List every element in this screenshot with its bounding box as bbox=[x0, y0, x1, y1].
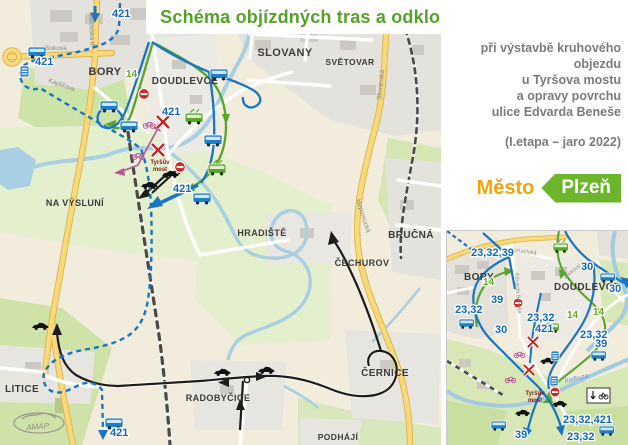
badge-39-right: 39 bbox=[595, 338, 607, 350]
badge-421-center: 421 bbox=[535, 323, 553, 335]
poster-root: BORY 14 DOUDLEVCE SLOVANY SVĚTOVAR NA VÝ… bbox=[0, 0, 628, 445]
detour-junction bbox=[244, 377, 249, 382]
badge-421-top: 421 bbox=[112, 8, 130, 20]
bus-stop-icon bbox=[550, 376, 558, 386]
bridge-label-line2: most bbox=[528, 398, 542, 404]
logo-mesto-text: Město bbox=[477, 177, 535, 200]
inset-map: BORY DOUDLEVCE Zborovská Edvarda Beneše … bbox=[447, 231, 628, 445]
badge-23-32-421: 23,32,421 bbox=[563, 414, 612, 426]
badge-14-bory: 14 bbox=[483, 277, 495, 288]
badge-23-32-bottom: 23,32 bbox=[567, 431, 595, 443]
district-label-cernice: ČERNICE bbox=[361, 366, 409, 379]
district-label-svetovar: SVĚTOVAR bbox=[325, 56, 374, 67]
pedestrian-sign bbox=[587, 388, 610, 403]
main-map: BORY 14 DOUDLEVCE SLOVANY SVĚTOVAR NA VÝ… bbox=[0, 0, 441, 445]
district-label-bory: BORY bbox=[89, 66, 122, 78]
badge-421-south: 421 bbox=[110, 427, 128, 439]
subtitle-line-1: při výstavbě kruhového objezdu bbox=[441, 40, 621, 72]
bus-icon bbox=[100, 101, 118, 113]
bridge-label-line1: Tyršův bbox=[150, 159, 170, 166]
bus-stop-icon bbox=[20, 66, 29, 77]
subtitle-line-3: a opravy povrchu bbox=[441, 88, 621, 104]
inset-map-frame: BORY DOUDLEVCE Zborovská Edvarda Beneše … bbox=[446, 230, 628, 445]
logo-plzen-tag: Plzeň bbox=[541, 174, 621, 203]
badge-23-32-39: 23,32,39 bbox=[471, 247, 514, 259]
no-entry-icon bbox=[139, 89, 150, 100]
badge-30-left: 30 bbox=[495, 324, 507, 336]
badge-14-b: 14 bbox=[593, 307, 605, 318]
district-label-slovany: SLOVANY bbox=[257, 47, 312, 59]
badge-23-32-left: 23,32 bbox=[455, 304, 483, 316]
bus-icon bbox=[204, 135, 222, 147]
route-14-badge: 14 bbox=[126, 69, 138, 80]
bus-icon bbox=[120, 121, 138, 133]
bus-icon bbox=[459, 319, 474, 329]
street-label-klatovska: Klatovská tř. bbox=[87, 12, 95, 48]
badge-421-west: 421 bbox=[35, 56, 53, 68]
district-label-radobycice: RADOBYČICE bbox=[186, 392, 251, 403]
bus-icon bbox=[193, 193, 211, 205]
badge-39-bottom: 39 bbox=[515, 429, 527, 441]
badge-30-right2: 30 bbox=[609, 283, 621, 295]
no-entry-icon bbox=[175, 162, 186, 173]
badge-39-left: 39 bbox=[491, 294, 503, 306]
city-logo: Město Plzeň bbox=[477, 174, 621, 202]
bus-stop-icon bbox=[551, 351, 559, 361]
bus-icon bbox=[599, 426, 614, 436]
subtitle-line-4: ulice Edvarda Beneše bbox=[441, 104, 621, 120]
bus-icon bbox=[491, 421, 506, 431]
badge-14-a: 14 bbox=[567, 310, 579, 321]
district-label-doudlevce: DOUDLEVCE bbox=[152, 76, 218, 87]
subtitle-block: při výstavbě kruhového objezdu u Tyršova… bbox=[441, 40, 621, 150]
badge-421-terminus: 421 bbox=[173, 183, 191, 195]
no-entry-icon bbox=[550, 387, 560, 397]
district-label-podhaji: PODHÁJÍ bbox=[318, 432, 359, 442]
subtitle-stage: (I.etapa – jaro 2022) bbox=[441, 134, 621, 150]
district-label-na-vysluni: NA VÝSLUNÍ bbox=[46, 197, 104, 208]
district-label-litice: LITICE bbox=[5, 384, 39, 395]
district-label-hradiste: HRADIŠTĚ bbox=[237, 227, 286, 238]
street-label-sukova: Sukova bbox=[45, 45, 67, 52]
bus-icon bbox=[591, 351, 606, 361]
badge-421-cancelled: 421 bbox=[162, 106, 180, 118]
district-label-cechurov: ČECHUROV bbox=[335, 257, 390, 268]
right-panel: při výstavbě kruhového objezdu u Tyršova… bbox=[441, 0, 628, 445]
bridge-label-line2: most bbox=[153, 167, 167, 173]
badge-30-right1: 30 bbox=[581, 261, 593, 273]
logo-plzen-text: Plzeň bbox=[561, 177, 611, 198]
bridge-label-line1: Tyršův bbox=[525, 390, 545, 397]
district-label-brucna: BRUČNÁ bbox=[388, 228, 434, 241]
subtitle-line-2: u Tyršova mostu bbox=[441, 72, 621, 88]
